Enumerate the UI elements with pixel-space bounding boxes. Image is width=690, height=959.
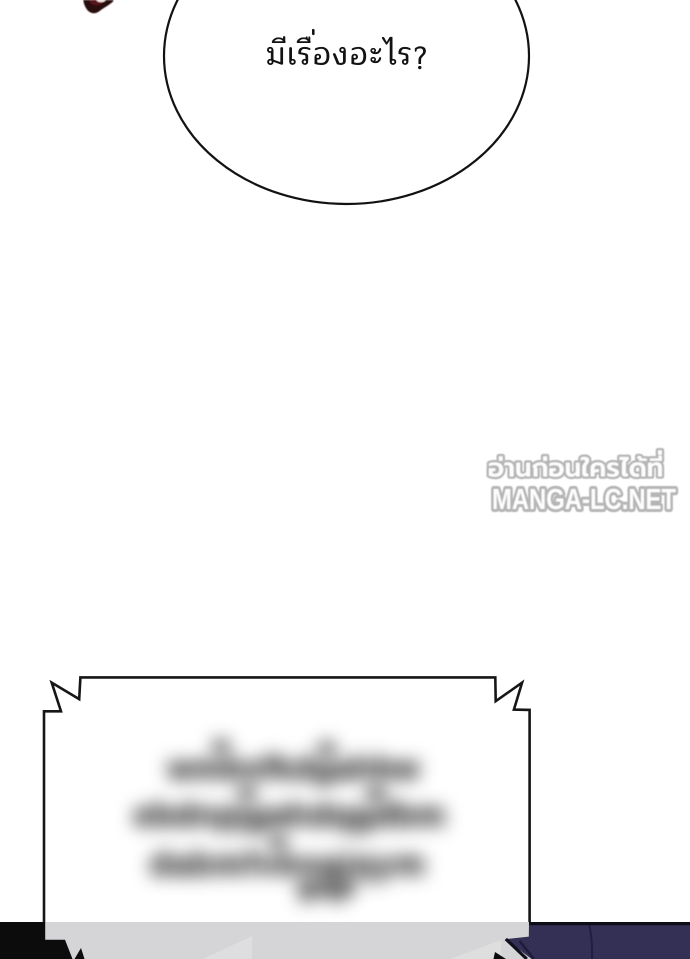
svg-text:MANGA-LC.NET: MANGA-LC.NET — [492, 484, 676, 516]
